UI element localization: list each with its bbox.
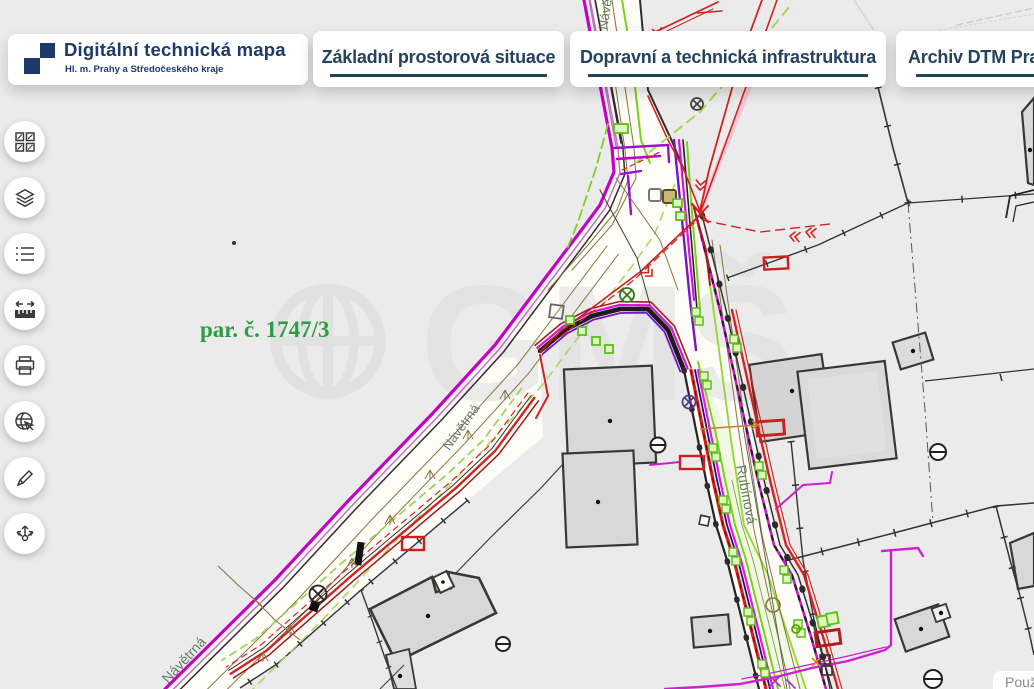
- svg-text:par. č. 1747/3: par. č. 1747/3: [200, 317, 330, 342]
